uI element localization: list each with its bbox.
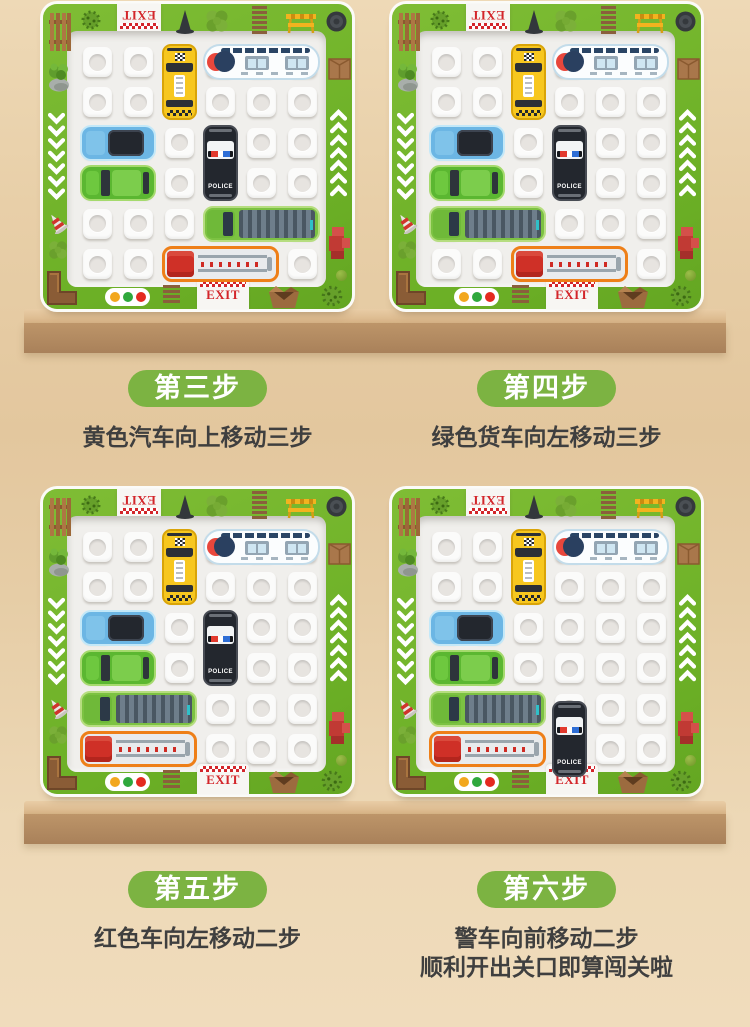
hydrant-icon <box>675 709 700 745</box>
hydrant-icon <box>675 224 700 260</box>
grid-cell <box>432 47 461 77</box>
wood-fence-icon <box>49 496 71 538</box>
step-5-block: 第五步 红色车向左移动二步 <box>43 871 352 953</box>
grid-cell <box>432 249 461 279</box>
open-box-icon <box>614 769 652 794</box>
vehicle-truck <box>203 206 320 242</box>
vehicle-police: POLICE <box>203 610 238 686</box>
track-ladder-icon <box>163 770 180 793</box>
vehicle-fire-truck <box>80 731 197 767</box>
grid-cell <box>637 209 666 239</box>
clover-icon <box>554 9 578 33</box>
plant-rock-icon <box>47 60 71 92</box>
wooden-shelf-top <box>24 309 726 354</box>
exit-top-label: EXIT <box>117 493 161 507</box>
product-instruction-image: EXITEXITPOLICEEXITEXITPOLICEEXITEXITPOLI… <box>0 0 750 1027</box>
grid-cell <box>247 128 276 158</box>
grid-cell <box>165 653 194 683</box>
grid-cell <box>637 249 666 279</box>
grid-cell <box>124 209 153 239</box>
chevrons-down-icon <box>397 112 414 204</box>
hydrant-icon <box>326 709 351 745</box>
step-5-description: 红色车向左移动二步 <box>43 924 352 953</box>
track-ladder-icon <box>512 285 529 308</box>
wood-corner-icon <box>46 755 78 791</box>
grid-cell <box>596 209 625 239</box>
vehicle-fire-truck <box>162 246 279 282</box>
vehicle-train <box>552 529 669 565</box>
board-step-4: EXITEXITPOLICE <box>392 4 701 309</box>
grid-cell <box>165 613 194 643</box>
traffic-light-icon <box>105 288 150 306</box>
grid-cell <box>83 87 112 117</box>
checker-strip <box>469 508 507 514</box>
step-6-line-1: 警车向前移动二步 <box>392 924 701 953</box>
spiky-bush-icon <box>428 493 452 517</box>
vehicle-truck <box>429 206 546 242</box>
wood-fence-icon <box>398 11 420 53</box>
barrier-icon <box>285 496 317 519</box>
vehicle-taxi <box>511 529 546 605</box>
exit-bottom-sign: EXIT <box>197 279 249 309</box>
grid-cell <box>247 613 276 643</box>
cardboard-box-icon <box>328 54 351 80</box>
chevrons-up-icon <box>679 594 696 686</box>
grid-cell <box>288 572 317 602</box>
grid-cell <box>555 572 584 602</box>
clover-icon <box>397 240 417 260</box>
grid-cell <box>83 209 112 239</box>
clover-icon <box>205 9 229 33</box>
green-ball-icon <box>685 270 696 281</box>
grid-cell <box>165 168 194 198</box>
spiky-bush-icon <box>428 8 452 32</box>
clover-icon <box>48 725 68 745</box>
vehicle-fire-truck <box>511 246 628 282</box>
exit-bottom-sign: EXIT <box>197 764 249 794</box>
board-step-6: EXITEXITPOLICE <box>392 489 701 794</box>
spiky-bush-icon <box>319 283 345 309</box>
grid-cell <box>637 168 666 198</box>
chevrons-up-icon <box>679 109 696 201</box>
vehicle-green-car <box>429 165 505 201</box>
vehicle-police: POLICE <box>552 701 587 777</box>
board-step-5: EXITEXITPOLICE <box>43 489 352 794</box>
track-ladder-icon <box>252 6 267 36</box>
board-step-3: EXITEXITPOLICE <box>43 4 352 309</box>
step-3-block: 第三步 黄色汽车向上移动三步 <box>43 370 352 452</box>
vehicle-fire-truck <box>429 731 546 767</box>
exit-top-label: EXIT <box>466 8 510 22</box>
grid-cell <box>165 128 194 158</box>
vehicle-taxi <box>162 44 197 120</box>
grid-cell <box>288 249 317 279</box>
grid-cell <box>514 613 543 643</box>
grid-cell <box>514 128 543 158</box>
barrier-icon <box>634 11 666 34</box>
open-box-icon <box>614 284 652 309</box>
track-ladder-icon <box>601 6 616 36</box>
spiky-bush-icon <box>668 283 694 309</box>
vehicle-blue-car <box>429 125 505 161</box>
grid-cell <box>596 168 625 198</box>
vehicle-blue-car <box>80 125 156 161</box>
clover-icon <box>554 494 578 518</box>
green-ball-icon <box>336 270 347 281</box>
exit-bottom-label: EXIT <box>546 288 598 302</box>
grid-cell <box>288 168 317 198</box>
wood-fence-icon <box>49 11 71 53</box>
green-ball-icon <box>685 755 696 766</box>
vehicle-blue-car <box>80 610 156 646</box>
step-4-line: 绿色货车向左移动三步 <box>392 423 701 452</box>
grid-cell <box>596 613 625 643</box>
manhole-icon <box>326 11 347 32</box>
wood-corner-icon <box>395 755 427 791</box>
grid-cell <box>124 47 153 77</box>
cardboard-box-icon <box>328 539 351 565</box>
track-ladder-icon <box>512 770 529 793</box>
cardboard-box-icon <box>677 539 700 565</box>
grid-cell <box>206 694 235 724</box>
grid-cell <box>637 87 666 117</box>
shelf-front <box>24 323 726 353</box>
vehicle-truck <box>429 691 546 727</box>
vehicle-train <box>203 529 320 565</box>
grid-cell <box>165 209 194 239</box>
step-5-line: 红色车向左移动二步 <box>43 924 352 953</box>
step-4-description: 绿色货车向左移动三步 <box>392 423 701 452</box>
exit-top-label: EXIT <box>117 8 161 22</box>
grid-cell <box>555 613 584 643</box>
tilted-cone-icon <box>45 212 69 234</box>
step-3-badge: 第三步 <box>128 370 267 407</box>
track-ladder-icon <box>163 285 180 308</box>
spiky-bush-icon <box>79 493 103 517</box>
grid-cell <box>473 249 502 279</box>
tilted-cone-icon <box>394 212 418 234</box>
grid-cell <box>637 734 666 764</box>
chevrons-down-icon <box>397 597 414 689</box>
grid-cell <box>637 653 666 683</box>
grid-cell <box>288 734 317 764</box>
wood-corner-icon <box>46 270 78 306</box>
plant-rock-icon <box>396 60 420 92</box>
step-6-line-2: 顺利开出关口即算闯关啦 <box>392 953 701 982</box>
grid-cell <box>247 653 276 683</box>
vehicle-taxi <box>511 44 546 120</box>
shelf-surface <box>24 801 726 814</box>
grid-cell <box>473 47 502 77</box>
grid-cell <box>432 532 461 562</box>
chevrons-down-icon <box>48 597 65 689</box>
grid-cell <box>637 613 666 643</box>
grid-cell <box>637 572 666 602</box>
grid-cell <box>206 87 235 117</box>
vehicle-blue-car <box>429 610 505 646</box>
grid-cell <box>514 653 543 683</box>
grid-cell <box>596 694 625 724</box>
grid-cell <box>473 532 502 562</box>
clover-icon <box>397 725 417 745</box>
grid-cell <box>247 694 276 724</box>
grid-cell <box>124 87 153 117</box>
chevrons-down-icon <box>48 112 65 204</box>
step-5-badge: 第五步 <box>128 871 267 908</box>
grid-cell <box>555 209 584 239</box>
cardboard-box-icon <box>677 54 700 80</box>
checker-strip <box>120 23 158 29</box>
grid-cell <box>432 572 461 602</box>
grid-cell <box>288 653 317 683</box>
grid-cell <box>555 87 584 117</box>
manhole-icon <box>675 11 696 32</box>
vehicle-green-car <box>80 165 156 201</box>
grid-cell <box>596 87 625 117</box>
vehicle-police: POLICE <box>552 125 587 201</box>
grid-cell <box>555 653 584 683</box>
wood-corner-icon <box>395 270 427 306</box>
step-4-badge: 第四步 <box>477 370 616 407</box>
vehicle-green-car <box>80 650 156 686</box>
chevrons-up-icon <box>330 594 347 686</box>
manhole-icon <box>675 496 696 517</box>
grid-cell <box>83 532 112 562</box>
step-6-description: 警车向前移动二步 顺利开出关口即算闯关啦 <box>392 924 701 982</box>
barrier-icon <box>285 11 317 34</box>
grid-cell <box>247 572 276 602</box>
hydrant-icon <box>326 224 351 260</box>
vehicle-green-car <box>429 650 505 686</box>
grid-cell <box>596 572 625 602</box>
traffic-light-icon <box>454 773 499 791</box>
barrier-icon <box>634 496 666 519</box>
grid-cell <box>596 653 625 683</box>
grid-cell <box>124 532 153 562</box>
step-3-description: 黄色汽车向上移动三步 <box>43 423 352 452</box>
grid-cell <box>596 128 625 158</box>
grid-cell <box>247 87 276 117</box>
grid-cell <box>288 613 317 643</box>
vehicle-train <box>552 44 669 80</box>
plant-rock-icon <box>396 545 420 577</box>
grid-cell <box>473 572 502 602</box>
traffic-cone-icon <box>524 9 544 34</box>
exit-bottom-label: EXIT <box>197 288 249 302</box>
wood-fence-icon <box>398 496 420 538</box>
grid-cell <box>637 128 666 158</box>
plant-rock-icon <box>47 545 71 577</box>
open-box-icon <box>265 284 303 309</box>
step-6-block: 第六步 警车向前移动二步 顺利开出关口即算闯关啦 <box>392 871 701 982</box>
grid-cell <box>288 128 317 158</box>
grid-cell <box>247 734 276 764</box>
spiky-bush-icon <box>319 768 345 794</box>
grid-cell <box>432 87 461 117</box>
exit-bottom-sign: EXIT <box>546 279 598 309</box>
traffic-cone-icon <box>175 9 195 34</box>
vehicle-truck <box>80 691 197 727</box>
green-ball-icon <box>336 755 347 766</box>
checker-strip <box>120 508 158 514</box>
track-ladder-icon <box>252 491 267 521</box>
grid-cell <box>124 249 153 279</box>
clover-icon <box>48 240 68 260</box>
grid-cell <box>514 168 543 198</box>
grid-cell <box>288 694 317 724</box>
grid-cell <box>288 87 317 117</box>
grid-cell <box>247 168 276 198</box>
shelf-surface <box>24 309 726 323</box>
spiky-bush-icon <box>79 8 103 32</box>
spiky-bush-icon <box>668 768 694 794</box>
open-box-icon <box>265 769 303 794</box>
tilted-cone-icon <box>394 697 418 719</box>
checker-strip <box>469 23 507 29</box>
chevrons-up-icon <box>330 109 347 201</box>
vehicle-train <box>203 44 320 80</box>
grid-cell <box>83 572 112 602</box>
traffic-light-icon <box>105 773 150 791</box>
step-6-badge: 第六步 <box>477 871 616 908</box>
grid-cell <box>473 87 502 117</box>
vehicle-police: POLICE <box>203 125 238 201</box>
manhole-icon <box>326 496 347 517</box>
grid-cell <box>206 572 235 602</box>
track-ladder-icon <box>601 491 616 521</box>
shelf-front <box>24 814 726 844</box>
exit-bottom-label: EXIT <box>197 773 249 787</box>
grid-cell <box>637 694 666 724</box>
grid-cell <box>206 734 235 764</box>
traffic-cone-icon <box>524 494 544 519</box>
tilted-cone-icon <box>45 697 69 719</box>
exit-top-label: EXIT <box>466 493 510 507</box>
grid-cell <box>124 572 153 602</box>
grid-cell <box>596 734 625 764</box>
clover-icon <box>205 494 229 518</box>
step-3-line: 黄色汽车向上移动三步 <box>43 423 352 452</box>
traffic-cone-icon <box>175 494 195 519</box>
vehicle-taxi <box>162 529 197 605</box>
grid-cell <box>83 249 112 279</box>
wooden-shelf-bottom <box>24 801 726 845</box>
step-4-block: 第四步 绿色货车向左移动三步 <box>392 370 701 452</box>
grid-cell <box>83 47 112 77</box>
traffic-light-icon <box>454 288 499 306</box>
